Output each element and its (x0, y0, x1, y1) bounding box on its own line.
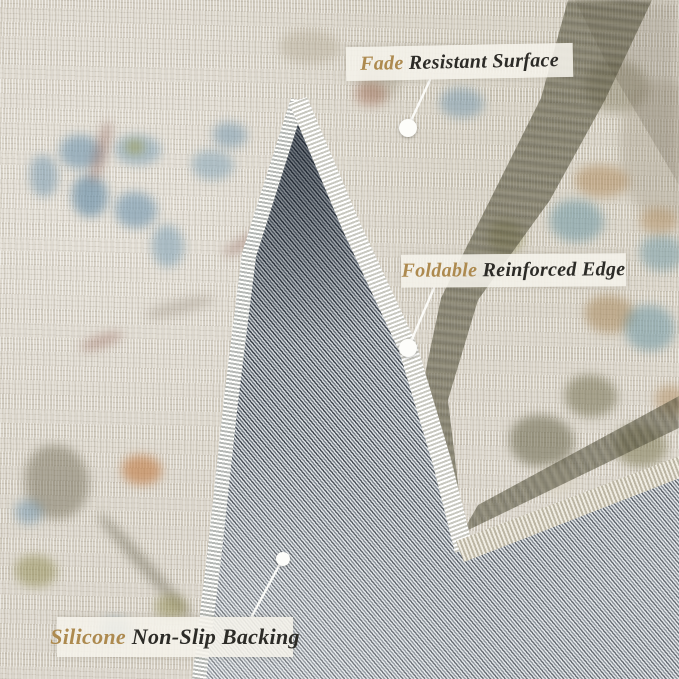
callout-dot-silicone (276, 552, 290, 566)
pattern-motif (213, 122, 247, 148)
pattern-motif (79, 328, 124, 354)
pattern-motif (280, 30, 340, 64)
rug-product-photo: Fade Resistant Surface Foldable Reinforc… (0, 0, 679, 679)
pattern-motif (640, 235, 679, 271)
pattern-motif (192, 150, 234, 180)
callout-dot-foldable (399, 339, 417, 357)
pattern-motif (30, 155, 58, 197)
callout-label-text: Non-Slip Backing (126, 624, 300, 650)
callout-label-foldable-reinforced-edge: Foldable Reinforced Edge (401, 253, 626, 288)
pattern-motif (126, 140, 144, 154)
pattern-motif (152, 225, 184, 267)
callout-label-text: Reinforced Edge (477, 258, 625, 282)
callout-dot-fade (399, 119, 417, 137)
pattern-motif (440, 88, 484, 118)
pattern-motif (115, 192, 157, 228)
pattern-motif (355, 82, 387, 106)
pattern-motif (144, 291, 215, 323)
callout-highlight-word: Silicone (50, 624, 126, 650)
pattern-motif (122, 455, 162, 485)
callout-highlight-word: Foldable (401, 259, 477, 283)
pattern-motif (625, 305, 675, 351)
pattern-motif (575, 165, 629, 197)
callout-highlight-word: Fade (360, 52, 404, 76)
pattern-motif (550, 200, 604, 242)
callout-label-text: Resistant Surface (403, 49, 559, 75)
callout-label-silicone-non-slip-backing: Silicone Non-Slip Backing (57, 617, 293, 657)
pattern-motif (15, 555, 57, 587)
pattern-motif (155, 595, 187, 619)
pattern-motif (565, 375, 617, 417)
pattern-motif (15, 500, 43, 524)
callout-label-fade-resistant-surface: Fade Resistant Surface (346, 43, 574, 81)
pattern-motif (640, 208, 678, 234)
